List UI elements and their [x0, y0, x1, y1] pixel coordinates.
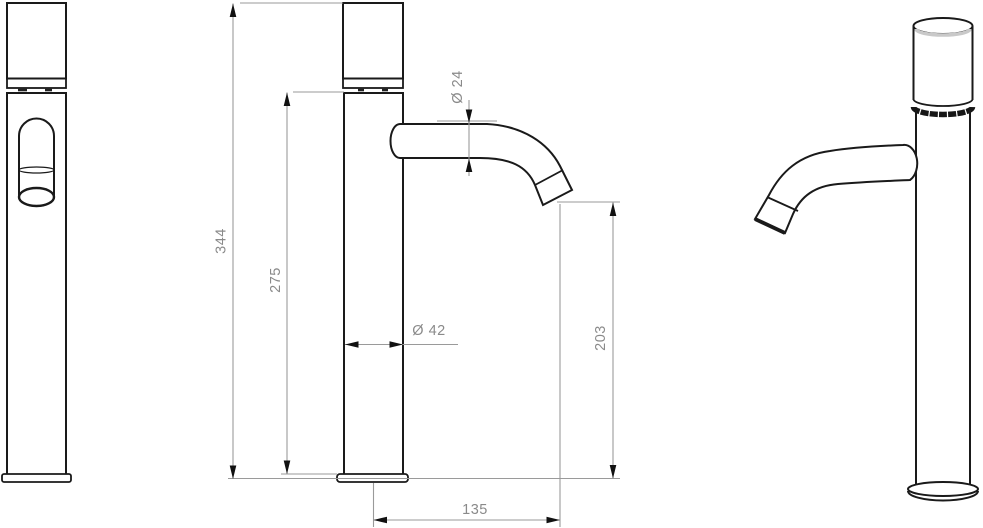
dim-203-arrow-up — [610, 203, 617, 217]
dim-outlet-height: 203 — [557, 202, 620, 479]
dim-42-arrow-right — [390, 341, 404, 348]
dim-upper-body-height: 275 — [268, 92, 344, 474]
dim-body-diameter: Ø 42 — [345, 323, 458, 348]
dim-135-arrow-right — [547, 517, 561, 524]
side-handle-cap — [343, 3, 403, 79]
front-view — [2, 3, 71, 482]
persp-dark-band — [914, 107, 973, 115]
dim-135-arrow-left — [374, 517, 388, 524]
dim-overall-height: 344 — [214, 3, 621, 479]
dim-42-arrow-left — [345, 341, 359, 348]
dim-344-arrow-up — [230, 4, 237, 18]
faucet-drawing-canvas: 344 275 Ø 24 Ø 42 203 135 — [0, 0, 983, 528]
persp-base-flange-top — [908, 482, 978, 496]
front-cap-band — [7, 79, 66, 89]
front-handle-cap — [7, 3, 66, 79]
dim-24-arrow-up — [466, 159, 473, 173]
technical-drawing-page: 344 275 Ø 24 Ø 42 203 135 — [0, 0, 983, 528]
persp-cap-bottom-arc — [914, 99, 973, 106]
side-cap-band — [343, 79, 403, 89]
dim-203-label: 203 — [593, 325, 609, 351]
dim-344-label: 344 — [214, 228, 230, 254]
side-spout-outline — [391, 124, 573, 205]
dim-24-label: Ø 24 — [450, 70, 466, 103]
dim-42-label: Ø 42 — [412, 323, 445, 339]
dim-344-arrow-down — [230, 466, 237, 480]
persp-spout-outline — [755, 145, 917, 233]
dim-275-arrow-up — [284, 93, 291, 107]
dim-275-arrow-down — [284, 461, 291, 475]
dim-203-arrow-down — [610, 465, 617, 479]
perspective-view — [755, 18, 978, 501]
dim-275-label: 275 — [268, 267, 284, 293]
dim-135-label: 135 — [462, 502, 488, 518]
front-spout-capsule — [19, 119, 54, 207]
front-base-flange — [2, 474, 71, 482]
